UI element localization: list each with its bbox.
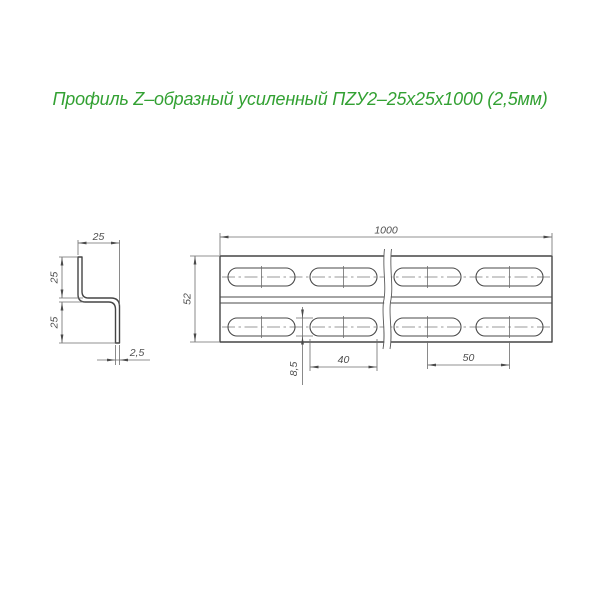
dim-label-upper-height: 25 <box>49 272 61 285</box>
main-view: 1000 52 40 <box>182 225 553 386</box>
dim-slot-width: 8,5 <box>288 307 313 385</box>
dim-label-slot-pitch: 50 <box>463 352 475 364</box>
dim-label-lower-height: 25 <box>49 317 61 330</box>
dim-slot-pitch: 50 <box>428 341 510 369</box>
z-profile-outline <box>78 257 120 343</box>
dim-label-flange-width: 25 <box>92 231 105 243</box>
dim-flange-width: 25 <box>78 231 120 305</box>
dim-label-slot-width: 8,5 <box>288 362 300 377</box>
dim-height: 52 <box>182 256 220 342</box>
drawing-page: Профиль Z–образный усиленный ПZУ2–25х25х… <box>0 0 600 600</box>
dim-label-length: 1000 <box>374 225 398 237</box>
dim-label-thickness: 2,5 <box>129 347 145 359</box>
technical-drawing-canvas: 25 25 25 <box>0 0 600 600</box>
section-view: 25 25 25 <box>49 231 151 365</box>
dim-slot-length: 40 <box>310 339 377 371</box>
dim-thickness: 2,5 <box>97 345 150 365</box>
dim-lower-height: 25 <box>49 302 116 343</box>
break-lines <box>383 249 392 349</box>
dim-label-slot-length: 40 <box>338 354 350 366</box>
dim-label-height: 52 <box>182 293 194 305</box>
